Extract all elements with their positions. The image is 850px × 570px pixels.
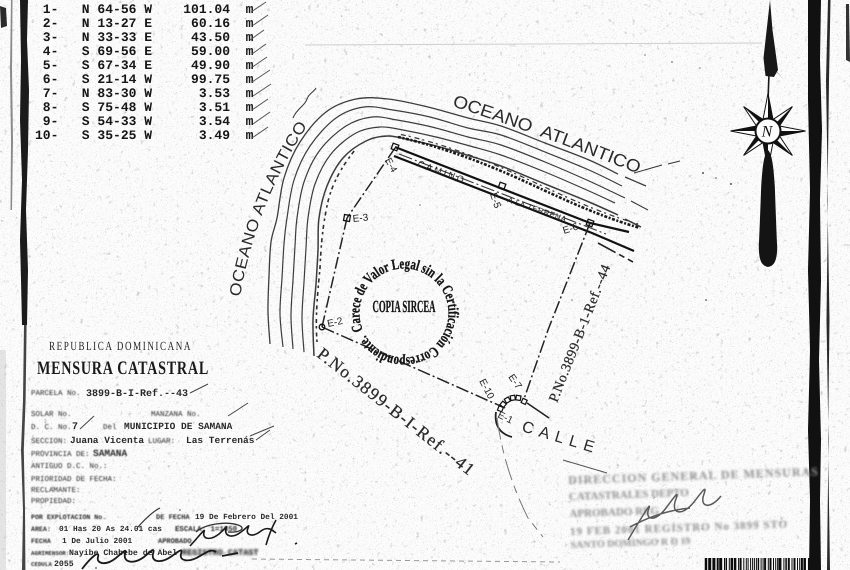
svg-text:Las Terrenás: Las Terrenás bbox=[186, 435, 255, 446]
svg-text:SECCION:: SECCION: bbox=[31, 437, 67, 446]
svg-text:CEDULA: CEDULA bbox=[31, 561, 52, 568]
svg-text:7- N 83-30 W 3.53 m: 7- N 83-30 W 3.53 m bbox=[35, 86, 254, 101]
svg-text:3899-B-I-Ref.--43: 3899-B-I-Ref.--43 bbox=[86, 388, 188, 400]
svg-text:MENSURA CATASTRAL: MENSURA CATASTRAL bbox=[37, 358, 209, 379]
svg-text:19 De Febrero Del 2001: 19 De Febrero Del 2001 bbox=[195, 513, 298, 522]
svg-text:MUNICIPIO DE SAMANA: MUNICIPIO DE SAMANA bbox=[124, 421, 233, 432]
svg-text:MANZANA No.: MANZANA No. bbox=[151, 411, 201, 419]
svg-text:REGISTRO CATAST: REGISTRO CATAST bbox=[182, 548, 259, 558]
svg-text:PROPIEDAD:: PROPIEDAD: bbox=[31, 497, 76, 506]
svg-text:Nayibe Chabebe de Abel: Nayibe Chabebe de Abel bbox=[69, 549, 177, 558]
svg-text:LUGAR:: LUGAR: bbox=[148, 437, 175, 446]
svg-text:10- S 35-25 W 3.49 m: 10- S 35-25 W 3.49 m bbox=[35, 128, 254, 143]
svg-text:SOLAR No.: SOLAR No. bbox=[31, 410, 72, 419]
svg-text:1- N 64-56 W 101.04 m: 1- N 64-56 W 101.04 m bbox=[35, 2, 254, 17]
svg-text:AGRIMENSOR:: AGRIMENSOR: bbox=[31, 550, 69, 557]
svg-text:2- N 13-27 E 60.16 m: 2- N 13-27 E 60.16 m bbox=[35, 16, 254, 31]
svg-text:D. C. No.: D. C. No. bbox=[31, 423, 72, 432]
svg-text:N: N bbox=[761, 124, 774, 141]
svg-text:8- S 75-48 W 3.51 m: 8- S 75-48 W 3.51 m bbox=[35, 100, 254, 115]
svg-text:ESCALA: 1=1650: ESCALA: 1=1650 bbox=[175, 526, 238, 534]
svg-text:6- S 21-14 W 99.75 m: 6- S 21-14 W 99.75 m bbox=[35, 72, 254, 87]
svg-text:APROBADO: APROBADO bbox=[158, 538, 192, 546]
svg-text:3- N 33-33 E 43.50 m: 3- N 33-33 E 43.50 m bbox=[35, 30, 254, 45]
svg-text:POR EXPLOTACION No.: POR EXPLOTACION No. bbox=[31, 514, 106, 521]
svg-text:1 De Julio 2001: 1 De Julio 2001 bbox=[62, 537, 133, 546]
svg-text:PRIORIDAD DE FECHA:: PRIORIDAD DE FECHA: bbox=[31, 475, 117, 484]
svg-text:Del: Del bbox=[103, 423, 117, 432]
svg-text:5- S 67-34 E 49.90 m: 5- S 67-34 E 49.90 m bbox=[35, 58, 254, 73]
svg-text:PROVINCIA DE:: PROVINCIA DE: bbox=[31, 450, 90, 459]
svg-text:DE FECHA: DE FECHA bbox=[156, 514, 190, 522]
svg-text:COPIA SIRCEA: COPIA SIRCEA bbox=[373, 297, 436, 316]
svg-text:ANTIGUO D.C. No.:: ANTIGUO D.C. No.: bbox=[31, 462, 108, 471]
svg-text:RECLAMANTE:: RECLAMANTE: bbox=[31, 486, 81, 495]
svg-text:PARCELA No.: PARCELA No. bbox=[31, 389, 81, 398]
svg-text:E-3: E-3 bbox=[352, 212, 369, 225]
svg-text:Juana Vicenta: Juana Vicenta bbox=[70, 435, 144, 446]
svg-text:9- S 54-33 W 3.54 m: 9- S 54-33 W 3.54 m bbox=[35, 114, 254, 129]
svg-text:REPUBLICA DOMINICANA: REPUBLICA DOMINICANA bbox=[49, 339, 192, 353]
svg-text:01 Has 20 As 24.01 cas: 01 Has 20 As 24.01 cas bbox=[59, 525, 162, 534]
svg-text:7: 7 bbox=[72, 422, 78, 433]
svg-text:SAMANA: SAMANA bbox=[93, 448, 128, 459]
svg-text:2055: 2055 bbox=[54, 560, 74, 569]
svg-text:FECHA: FECHA bbox=[31, 538, 51, 545]
svg-text:AREA:: AREA: bbox=[31, 526, 51, 533]
svg-text:4- S 69-56 E 59.00 m: 4- S 69-56 E 59.00 m bbox=[35, 44, 254, 59]
